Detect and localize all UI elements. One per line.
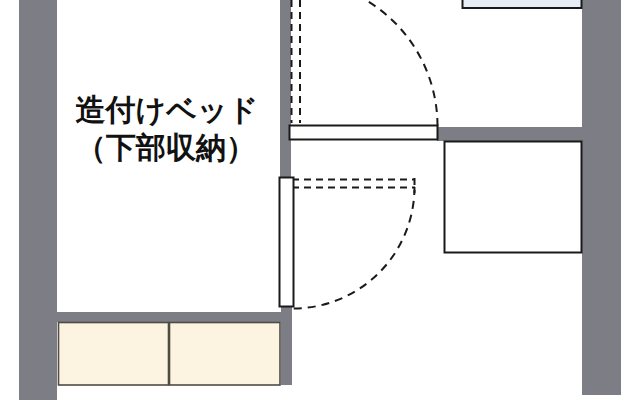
bed-label-line2: （下部収納） bbox=[76, 131, 256, 164]
door-top-leaf bbox=[290, 126, 438, 140]
bed-label-line1: 造付けベッド bbox=[76, 93, 259, 127]
wall-left bbox=[19, 0, 57, 400]
floorplan-canvas: 造付けベッド （下部収納） bbox=[0, 0, 640, 400]
wall-bed-horizontal bbox=[57, 312, 292, 322]
bed-right-panel bbox=[170, 323, 281, 386]
right-room-fixture bbox=[445, 142, 582, 253]
bed-left-panel bbox=[59, 323, 169, 386]
wall-partition-upper bbox=[280, 0, 291, 178]
wall-right bbox=[582, 0, 621, 395]
wall-right-horizontal bbox=[437, 127, 582, 141]
window-top bbox=[463, 0, 582, 8]
door-bottom-leaf bbox=[280, 178, 294, 307]
